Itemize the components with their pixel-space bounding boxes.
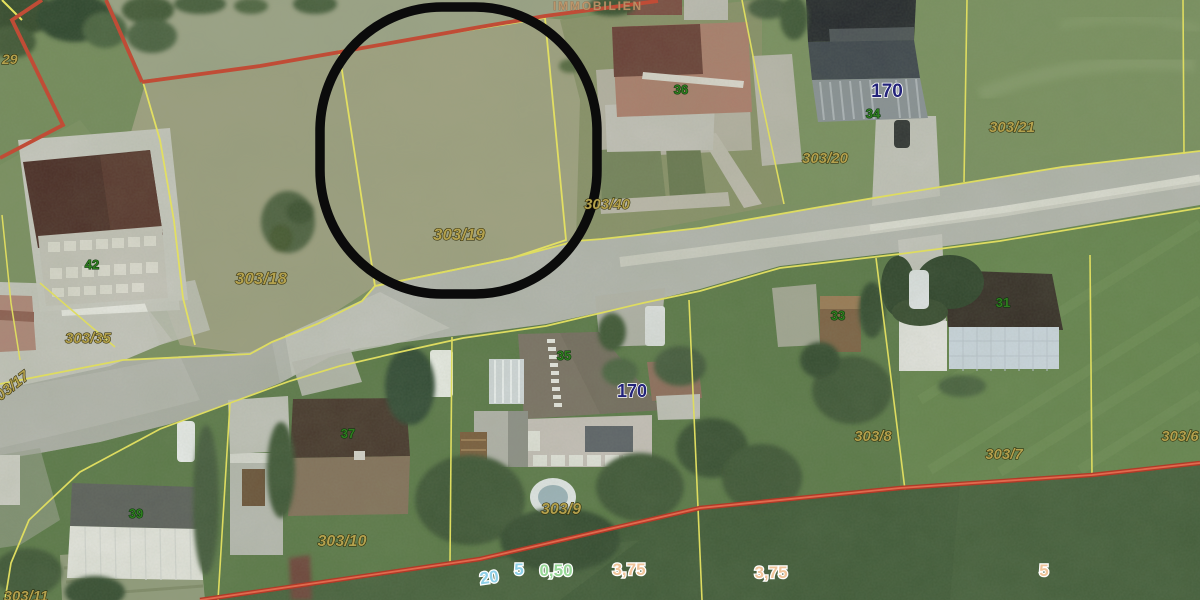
svg-text:303/8: 303/8 (854, 428, 892, 445)
svg-text:303/20: 303/20 (802, 150, 849, 167)
svg-text:303/21: 303/21 (989, 119, 1035, 136)
svg-text:170: 170 (617, 381, 647, 401)
svg-text:303/35: 303/35 (65, 330, 112, 347)
svg-text:31: 31 (996, 295, 1010, 310)
svg-text:303/19: 303/19 (433, 225, 486, 244)
svg-text:0,50: 0,50 (539, 561, 572, 580)
svg-text:5: 5 (1039, 561, 1048, 580)
svg-text:IMMOBILIEN: IMMOBILIEN (553, 0, 643, 13)
svg-text:37: 37 (341, 426, 355, 441)
svg-text:303/7: 303/7 (985, 446, 1023, 463)
svg-text:303/10: 303/10 (318, 533, 367, 550)
svg-text:303/11: 303/11 (4, 588, 49, 600)
svg-text:170: 170 (871, 81, 903, 102)
svg-text:34: 34 (866, 106, 881, 121)
svg-text:3,75: 3,75 (754, 563, 787, 582)
svg-text:3,75: 3,75 (612, 560, 645, 579)
svg-text:36: 36 (674, 82, 688, 97)
svg-text:303/6: 303/6 (1161, 428, 1199, 445)
svg-text:42: 42 (85, 257, 99, 272)
svg-text:303/40: 303/40 (584, 196, 631, 213)
svg-text:303/18: 303/18 (235, 269, 288, 288)
svg-text:20: 20 (479, 567, 500, 588)
svg-text:39: 39 (129, 506, 143, 521)
svg-text:303/9: 303/9 (541, 501, 581, 518)
svg-text:5: 5 (514, 560, 523, 579)
svg-text:33: 33 (831, 308, 845, 323)
svg-text:35: 35 (557, 348, 571, 363)
svg-text:29: 29 (1, 51, 18, 67)
